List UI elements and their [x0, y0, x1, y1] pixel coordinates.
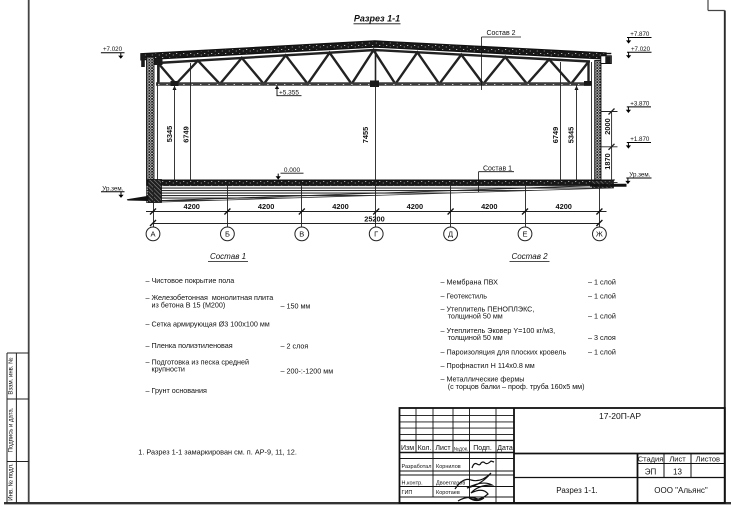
svg-text:13: 13	[673, 468, 682, 477]
svg-text:– Мембрана ПВХ: – Мембрана ПВХ	[441, 278, 499, 287]
svg-text:Состав 2: Состав 2	[511, 252, 548, 261]
svg-text:– 1 слой: – 1 слой	[588, 347, 616, 356]
svg-text:– 3 слоя: – 3 слоя	[588, 333, 616, 342]
svg-text:Ур.зем.: Ур.зем.	[102, 185, 123, 192]
svg-text:1. Разрез 1-1 замаркирован см.: 1. Разрез 1-1 замаркирован см. п. АР-9, …	[138, 448, 297, 457]
svg-text:Лист: Лист	[669, 455, 686, 464]
svg-text:Корнилов: Корнилов	[436, 464, 461, 470]
svg-text:4200: 4200	[481, 202, 497, 211]
svg-text:7455: 7455	[361, 127, 370, 143]
svg-text:4200: 4200	[258, 202, 274, 211]
svg-text:2000: 2000	[603, 118, 612, 134]
svg-text:+1.870: +1.870	[630, 136, 650, 143]
svg-text:Подп.: Подп.	[473, 445, 492, 452]
svg-text:25200: 25200	[364, 214, 385, 223]
svg-text:– Грунт основания: – Грунт основания	[146, 386, 208, 395]
svg-text:17-20П-АР: 17-20П-АР	[599, 411, 641, 421]
svg-text:4200: 4200	[407, 202, 423, 211]
svg-text:1870: 1870	[603, 153, 612, 169]
svg-text:толщиной 50 мм: толщиной 50 мм	[448, 333, 503, 342]
svg-text:Состав 1: Состав 1	[210, 252, 246, 261]
svg-text:– 1 слой: – 1 слой	[588, 312, 616, 321]
svg-text:Е: Е	[522, 230, 527, 239]
svg-text:– Пароизоляция для плоских кро: – Пароизоляция для плоских кровель	[441, 347, 567, 356]
svg-text:(с торцов балки – проф. труба: (с торцов балки – проф. труба 160х5 мм)	[448, 382, 585, 391]
svg-text:– Пленка полиэтиленовая: – Пленка полиэтиленовая	[146, 341, 233, 350]
svg-text:крупности: крупности	[152, 365, 185, 374]
svg-text:4200: 4200	[183, 202, 199, 211]
svg-text:Дата: Дата	[497, 445, 513, 452]
svg-text:– 1 слой: – 1 слой	[588, 292, 616, 301]
svg-text:Разработал: Разработал	[402, 464, 432, 470]
svg-text:4200: 4200	[555, 202, 571, 211]
svg-text:– 200-:-1200 мм: – 200-:-1200 мм	[281, 366, 334, 375]
svg-text:Лист: Лист	[435, 445, 451, 452]
svg-text:А: А	[150, 230, 155, 239]
svg-text:Изм: Изм	[401, 445, 414, 452]
svg-text:+3.870: +3.870	[630, 100, 650, 107]
svg-text:Состав 2: Состав 2	[486, 30, 515, 37]
svg-text:+7.020: +7.020	[103, 46, 123, 53]
svg-text:Взам. инв. №: Взам. инв. №	[8, 357, 15, 394]
svg-text:ООО "Альянс": ООО "Альянс"	[654, 486, 708, 495]
svg-text:– Чистовое покрытие пола: – Чистовое покрытие пола	[146, 276, 235, 285]
svg-text:Двоеглазов: Двоеглазов	[436, 481, 465, 487]
svg-text:Подпись и дата.: Подпись и дата.	[9, 407, 15, 452]
svg-text:5345: 5345	[567, 127, 576, 143]
svg-text:Разрез 1-1: Разрез 1-1	[354, 14, 400, 24]
svg-text:4200: 4200	[332, 202, 348, 211]
svg-text:Н.контр.: Н.контр.	[402, 481, 424, 487]
svg-text:Ур.зем.: Ур.зем.	[629, 171, 650, 178]
svg-text:Разрез 1-1.: Разрез 1-1.	[556, 486, 598, 495]
svg-text:В: В	[299, 230, 304, 239]
svg-text:Ж: Ж	[596, 230, 603, 239]
svg-text:Г: Г	[374, 230, 378, 239]
svg-text:ЭП: ЭП	[645, 468, 657, 477]
svg-text:Инв. № подл.: Инв. № подл.	[8, 463, 15, 501]
svg-text:Д: Д	[448, 230, 453, 239]
svg-text:+7.020: +7.020	[631, 46, 651, 53]
svg-text:ГИП: ГИП	[402, 490, 413, 496]
svg-text:Б: Б	[225, 230, 230, 239]
svg-text:6749: 6749	[551, 127, 560, 143]
svg-text:№док.: №док.	[454, 447, 469, 453]
svg-text:Кол.: Кол.	[418, 445, 432, 452]
svg-text:– 150 мм: – 150 мм	[281, 301, 311, 310]
svg-text:из бетона В 15 (М200): из бетона В 15 (М200)	[152, 300, 226, 309]
svg-text:– Геотекстиль: – Геотекстиль	[441, 292, 488, 301]
svg-text:6749: 6749	[181, 126, 190, 142]
svg-text:5345: 5345	[165, 126, 174, 142]
svg-text:– 2 слоя: – 2 слоя	[281, 341, 309, 350]
svg-text:Состав 1: Состав 1	[483, 165, 512, 172]
svg-text:– Профнастил Н 114х0.8 мм: – Профнастил Н 114х0.8 мм	[441, 361, 535, 370]
svg-text:толщиной 50 мм: толщиной 50 мм	[448, 312, 503, 321]
svg-text:+7.870: +7.870	[630, 31, 650, 38]
svg-text:Листов: Листов	[696, 455, 720, 464]
svg-text:– Сетка армирующая Ø3 100х100: – Сетка армирующая Ø3 100х100 мм	[146, 319, 270, 328]
svg-text:Коротаев: Коротаев	[436, 490, 460, 496]
svg-text:– 1 слой: – 1 слой	[588, 278, 616, 287]
svg-text:Стадия: Стадия	[638, 455, 664, 464]
